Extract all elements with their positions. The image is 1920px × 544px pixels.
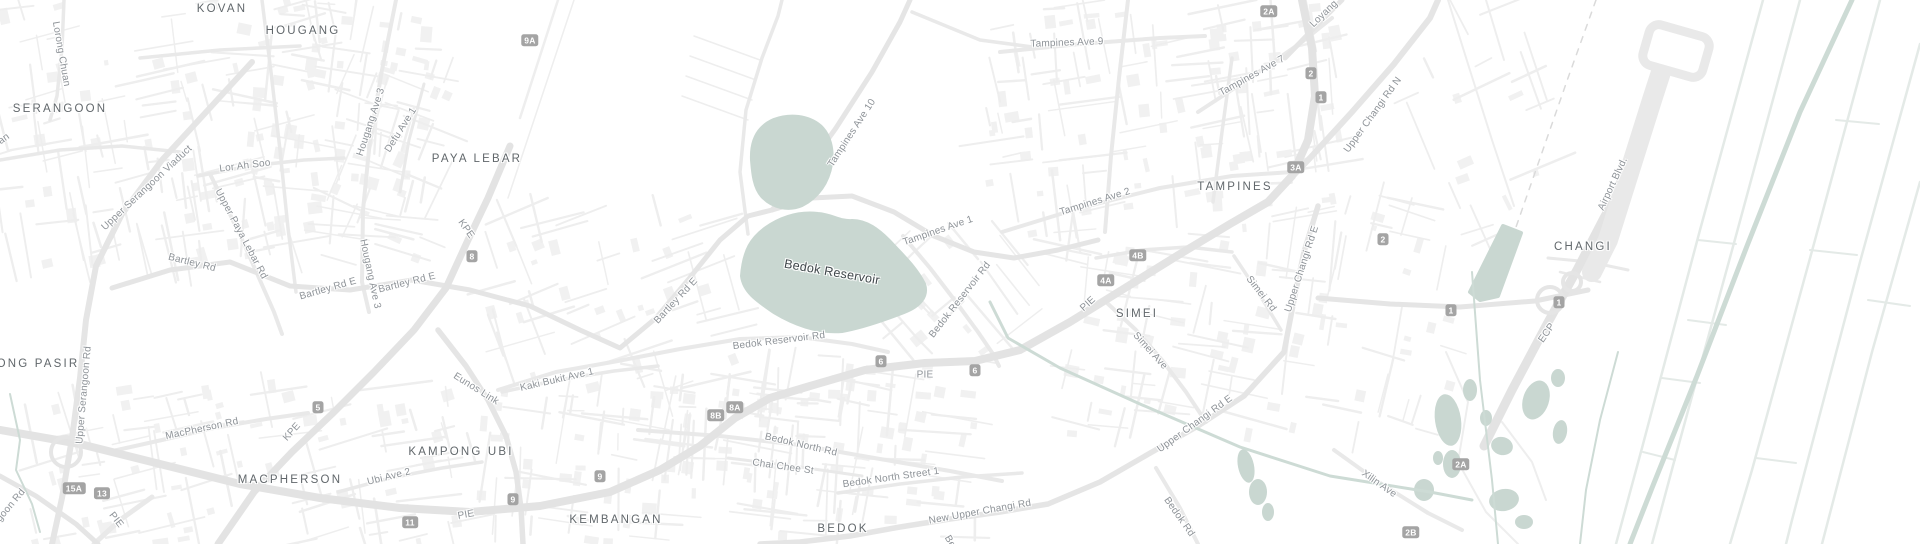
map-canvas[interactable]: Lorong ChuanUpper Serangoon ViaductLor A… xyxy=(0,0,1920,544)
map-graphics xyxy=(0,0,1920,544)
